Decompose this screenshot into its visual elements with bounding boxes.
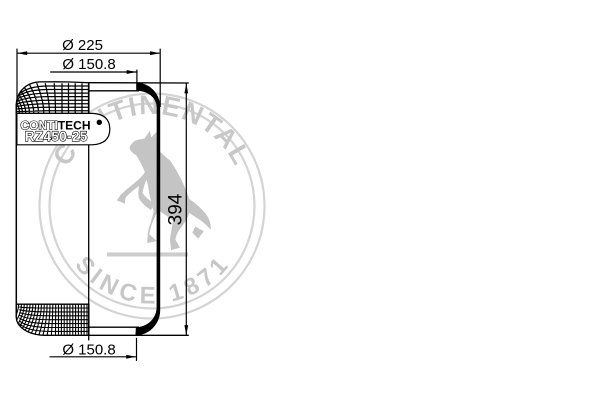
svg-text:Ø 150.8: Ø 150.8 [62,342,115,359]
svg-text:Ø 150.8: Ø 150.8 [62,56,115,73]
svg-text:RZ450-25: RZ450-25 [25,129,88,144]
svg-text:394: 394 [165,193,186,225]
svg-text:Ø 225: Ø 225 [62,37,103,54]
